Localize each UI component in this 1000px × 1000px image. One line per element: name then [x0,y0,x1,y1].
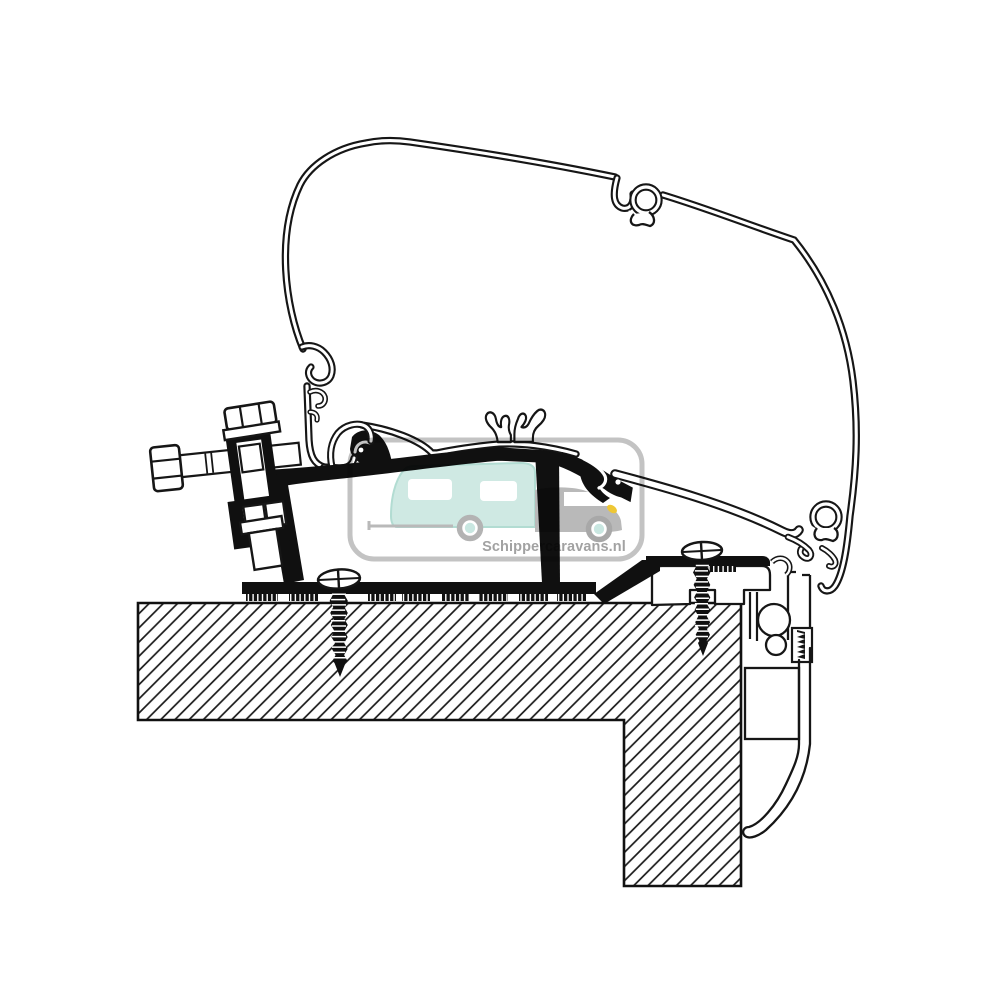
svg-text:Schippercaravans.nl: Schippercaravans.nl [482,539,626,555]
